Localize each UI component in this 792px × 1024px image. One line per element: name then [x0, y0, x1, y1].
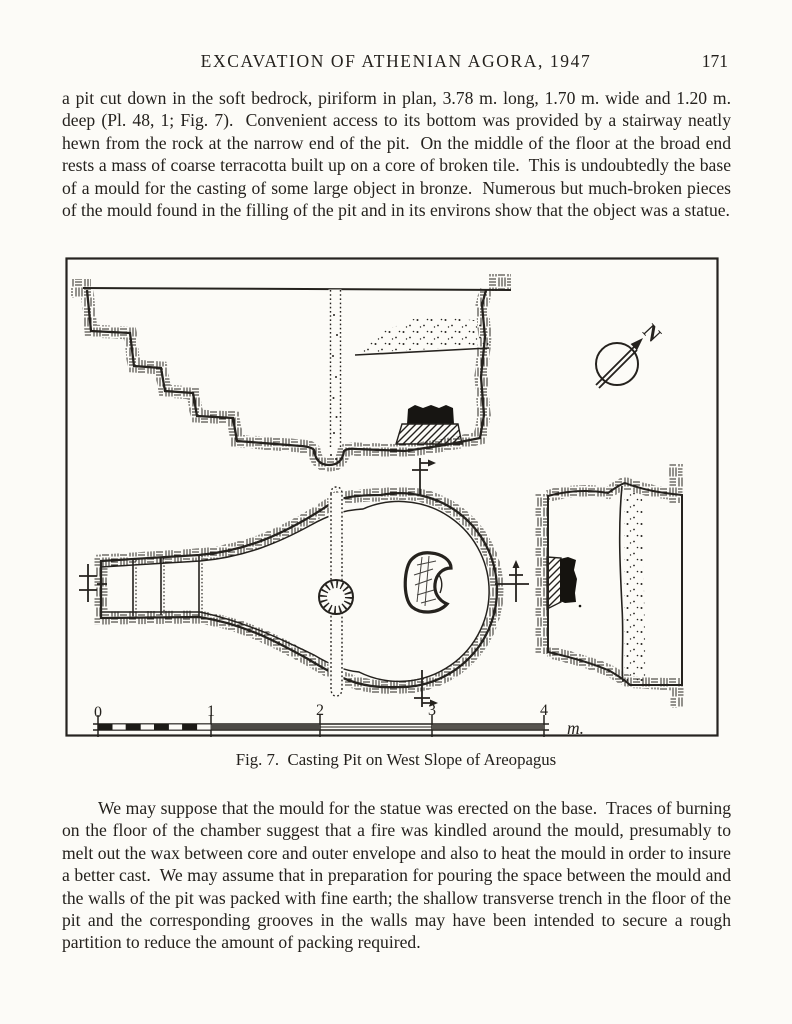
plan-view [79, 458, 529, 707]
section-view [71, 274, 511, 465]
partition-groove-section [329, 290, 342, 461]
figure-7-drawing: N [65, 257, 719, 737]
scale-labels: 0 1 2 3 4 m. [94, 702, 584, 737]
fragment-divider [620, 486, 623, 682]
mould-base-section [396, 405, 462, 444]
scale-label-2: 2 [316, 702, 324, 719]
ground-line [83, 288, 511, 290]
paragraph-2: We may suppose that the mould for the st… [62, 797, 731, 954]
fragment-hatch-top [548, 483, 682, 496]
north-arrow: N [596, 319, 666, 388]
scale-label-4: 4 [540, 702, 548, 719]
scanned-paper-page: EXCAVATION OF ATHENIAN AGORA, 1947 171 a… [0, 0, 792, 1024]
fill-deposit-stipple [355, 316, 489, 355]
north-label: N [638, 319, 666, 346]
paragraph-1: a pit cut down in the soft bedrock, piri… [62, 87, 731, 221]
figure-7: N [65, 257, 719, 737]
terracotta-mass-plan [405, 553, 451, 612]
scale-label-0: 0 [94, 704, 102, 721]
north-shaft [596, 347, 637, 388]
scale-bar: 0 1 2 3 4 m. [93, 702, 584, 737]
surface-hatch-right [489, 274, 511, 291]
broad-end-fragment [542, 464, 682, 708]
page-number: 171 [702, 51, 728, 72]
scale-label-1: 1 [207, 703, 215, 720]
scale-subdivisions [98, 724, 211, 730]
fragment-stipple [624, 490, 646, 681]
running-head-title: EXCAVATION OF ATHENIAN AGORA, 1947 [62, 51, 730, 72]
fragment-mould-base [547, 557, 581, 609]
scale-unit: m. [567, 718, 584, 737]
scale-label-3: 3 [428, 702, 436, 719]
figure-caption: Fig. 7. Casting Pit on West Slope of Are… [62, 750, 730, 770]
